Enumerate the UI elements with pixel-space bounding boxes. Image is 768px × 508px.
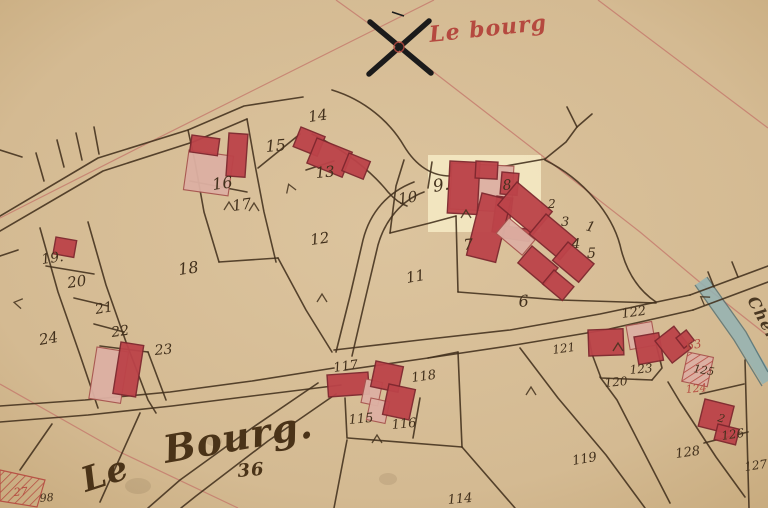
parcel-label-98: 98 xyxy=(39,491,54,505)
building-red xyxy=(588,329,624,356)
parcel-label-14: 14 xyxy=(307,105,328,125)
building-red xyxy=(475,161,498,179)
paper-background xyxy=(0,0,768,508)
parcel-label-116: 116 xyxy=(391,416,417,433)
parcel-label-22: 22 xyxy=(109,323,130,341)
parcel-label-21: 21 xyxy=(93,299,114,318)
parcel-label-20: 20 xyxy=(65,271,88,292)
parcel-label-124: 124 xyxy=(685,381,707,396)
parcel-label-19: 19. xyxy=(40,249,64,268)
parcel-label-5: 5 xyxy=(587,246,596,262)
parcel-label-123: 123 xyxy=(629,361,653,377)
parcel-label-6: 6 xyxy=(518,291,530,311)
parcel-label-115: 115 xyxy=(348,411,374,428)
parcel-label-15: 15 xyxy=(265,135,287,156)
parcel-label-2: 2 xyxy=(547,197,556,211)
parcel-label-17: 17 xyxy=(231,194,253,215)
parcel-label-114: 114 xyxy=(447,491,473,508)
parcel-label-3: 3 xyxy=(561,215,569,230)
parcel-label-11: 11 xyxy=(405,266,427,287)
parcel-label-16: 16 xyxy=(211,172,234,194)
parcel-label-12: 12 xyxy=(309,228,330,248)
paper-stain xyxy=(379,473,397,485)
parcel-label-18: 18 xyxy=(177,257,200,279)
place-name-36: 36 xyxy=(237,459,266,482)
parcel-label-9: 9. xyxy=(431,174,450,197)
building-red xyxy=(383,384,416,420)
parcel-label-24: 24 xyxy=(37,328,60,349)
parcel-label-8: 8 xyxy=(502,177,512,194)
parcel-label-4: 4 xyxy=(571,237,580,252)
parcel-label-27: 27 xyxy=(12,485,28,499)
cadastral-map-viewport[interactable]: 1415161317109.823145712111819.2021222324… xyxy=(0,0,768,508)
building-red xyxy=(226,133,248,177)
parcel-label-63: 63 xyxy=(685,336,703,353)
paper xyxy=(0,0,768,508)
cadastral-map: 1415161317109.823145712111819.2021222324… xyxy=(0,0,768,508)
building-red xyxy=(190,135,220,156)
parcel-label-13: 13 xyxy=(315,162,336,182)
parcel-label-10: 10 xyxy=(397,187,419,208)
parcel-label-120: 120 xyxy=(604,374,628,390)
parcel-label-23: 23 xyxy=(153,341,173,359)
